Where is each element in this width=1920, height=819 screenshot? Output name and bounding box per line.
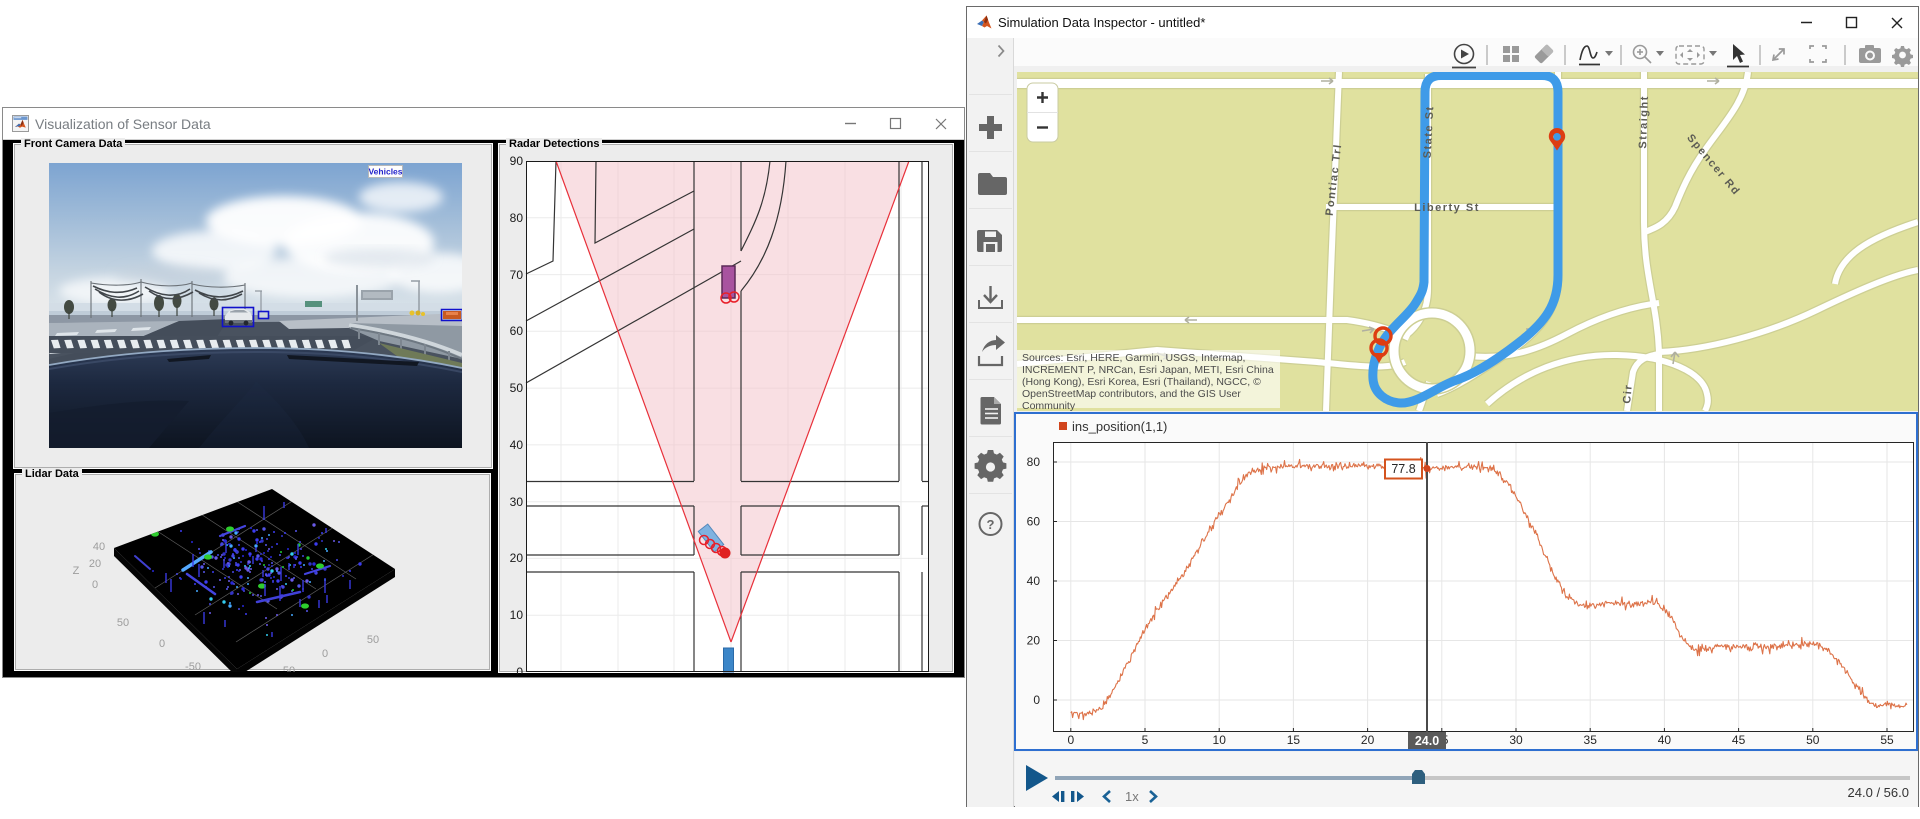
svg-text:30: 30	[1509, 733, 1523, 747]
svg-text:50: 50	[367, 634, 379, 646]
svg-text:20: 20	[1027, 634, 1041, 648]
svg-text:40: 40	[510, 438, 524, 452]
svg-text:24.0 / 56.0: 24.0 / 56.0	[1848, 785, 1909, 800]
svg-text:20: 20	[89, 558, 101, 570]
svg-text:?: ?	[987, 517, 995, 532]
svg-text:ins_position(1,1): ins_position(1,1)	[1072, 419, 1167, 434]
svg-text:0: 0	[1067, 733, 1074, 747]
svg-text:40: 40	[1027, 574, 1041, 588]
svg-text:Z: Z	[73, 565, 80, 577]
svg-text:10: 10	[1213, 733, 1227, 747]
svg-text:0: 0	[159, 638, 165, 650]
svg-text:60: 60	[510, 324, 524, 338]
svg-text:15: 15	[1287, 733, 1301, 747]
svg-text:Straight: Straight	[1637, 95, 1651, 149]
svg-text:0: 0	[1033, 693, 1040, 707]
svg-text:20: 20	[1361, 733, 1375, 747]
svg-text:50: 50	[283, 665, 295, 672]
svg-text:10: 10	[510, 608, 524, 622]
svg-text:50: 50	[510, 381, 524, 395]
svg-text:50: 50	[117, 617, 129, 629]
svg-text:INCREMENT P, NRCan, Esri Japan: INCREMENT P, NRCan, Esri Japan, METI, Es…	[1022, 364, 1274, 376]
svg-text:70: 70	[510, 268, 524, 282]
svg-text:55: 55	[1880, 733, 1894, 747]
svg-text:(Hong Kong), Esri Korea, Esri: (Hong Kong), Esri Korea, Esri (Thailand)…	[1022, 376, 1261, 388]
svg-text:Vehicles: Vehicles	[368, 167, 402, 177]
svg-text:60: 60	[1027, 515, 1041, 529]
svg-text:20: 20	[510, 551, 524, 565]
svg-text:80: 80	[510, 211, 524, 225]
svg-text:1x: 1x	[1125, 789, 1139, 804]
svg-text:77.8: 77.8	[1391, 462, 1415, 476]
svg-text:Liberty St: Liberty St	[1414, 202, 1480, 214]
svg-text:40: 40	[93, 541, 105, 553]
svg-text:0: 0	[322, 648, 328, 660]
svg-text:35: 35	[1584, 733, 1598, 747]
svg-text:Sources: Esri, HERE, Garmin, U: Sources: Esri, HERE, Garmin, USGS, Inter…	[1022, 352, 1245, 364]
svg-text:80: 80	[1027, 455, 1041, 469]
svg-text:45: 45	[1732, 733, 1746, 747]
svg-text:30: 30	[510, 495, 524, 509]
svg-text:0: 0	[516, 665, 523, 674]
svg-text:40: 40	[1658, 733, 1672, 747]
svg-text:0: 0	[92, 579, 98, 591]
svg-text:-50: -50	[185, 661, 201, 672]
svg-text:24.0: 24.0	[1415, 734, 1439, 748]
svg-text:5: 5	[1142, 733, 1149, 747]
svg-text:90: 90	[510, 154, 524, 168]
svg-text:Community: Community	[1022, 400, 1076, 411]
svg-text:Cir: Cir	[1621, 383, 1635, 404]
svg-text:OpenStreetMap contributors, an: OpenStreetMap contributors, and the GIS …	[1022, 388, 1241, 400]
svg-text:50: 50	[1806, 733, 1820, 747]
